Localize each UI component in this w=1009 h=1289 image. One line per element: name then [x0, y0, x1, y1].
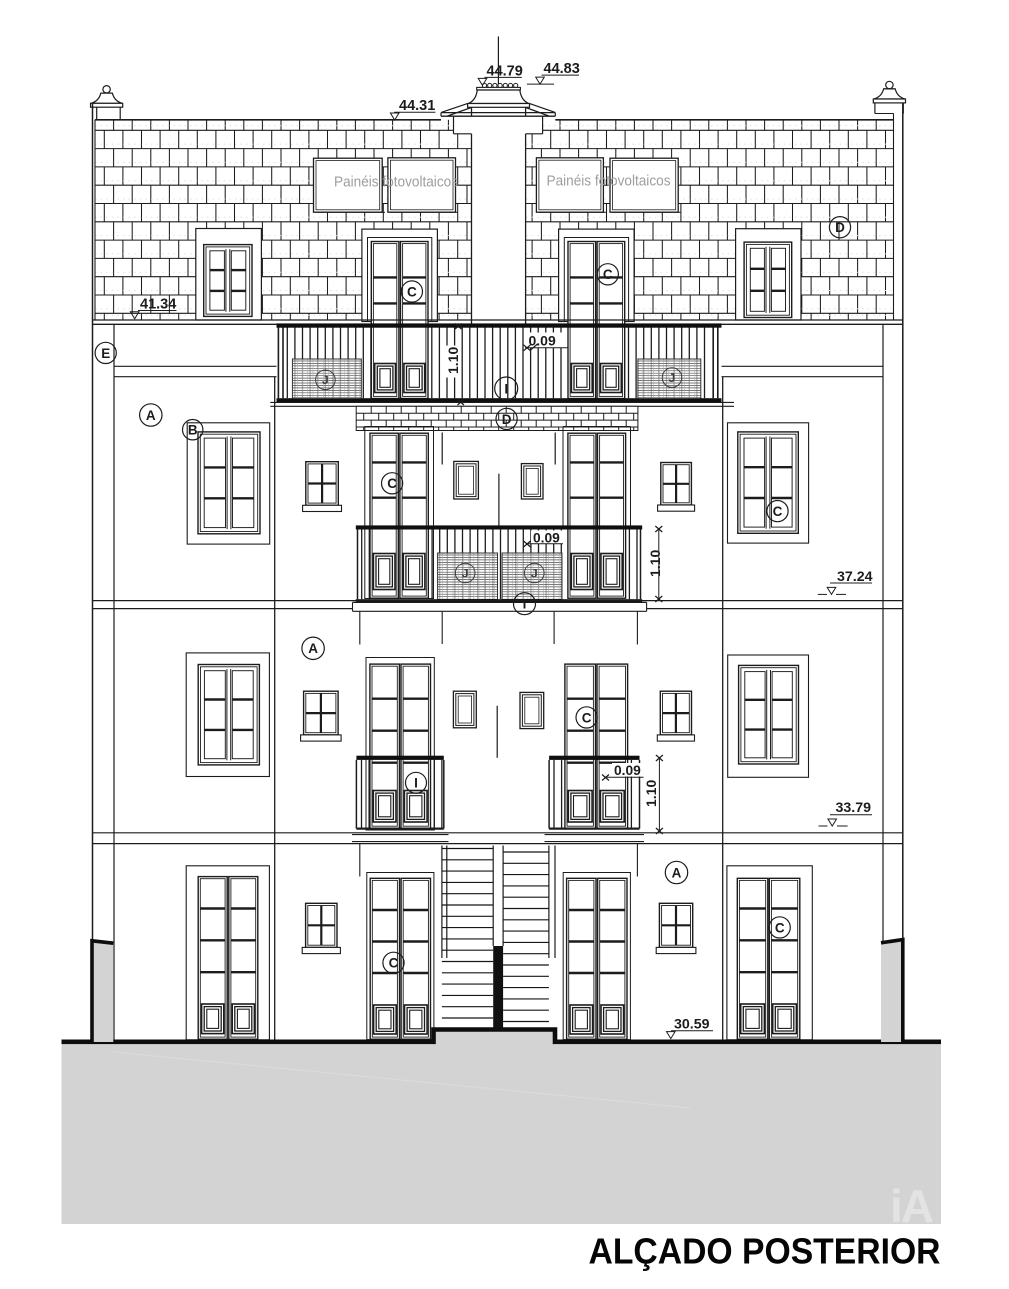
svg-text:C: C: [775, 920, 785, 935]
svg-text:A: A: [672, 865, 682, 880]
svg-text:J: J: [462, 566, 469, 580]
svg-text:A: A: [146, 408, 156, 423]
svg-text:iA: iA: [890, 1180, 933, 1232]
svg-text:41.34: 41.34: [140, 296, 176, 312]
svg-text:I: I: [414, 776, 418, 791]
svg-text:C: C: [773, 504, 783, 519]
svg-text:D: D: [835, 220, 845, 235]
svg-text:I: I: [504, 381, 508, 396]
svg-text:Painéis fotovoltaicos: Painéis fotovoltaicos: [334, 174, 458, 191]
svg-text:C: C: [407, 284, 417, 299]
svg-text:1.10: 1.10: [647, 550, 663, 577]
svg-text:30.59: 30.59: [674, 1017, 710, 1033]
svg-text:ALÇADO POSTERIOR: ALÇADO POSTERIOR: [589, 1231, 941, 1272]
svg-text:C: C: [387, 476, 397, 491]
svg-text:C: C: [389, 956, 399, 971]
svg-text:E: E: [101, 346, 110, 361]
svg-text:1.10: 1.10: [643, 780, 659, 807]
svg-text:J: J: [322, 373, 329, 387]
svg-text:1.10: 1.10: [445, 347, 461, 374]
svg-text:0.09: 0.09: [529, 333, 556, 349]
svg-text:33.79: 33.79: [836, 800, 872, 816]
svg-text:J: J: [531, 566, 538, 580]
svg-text:C: C: [603, 267, 613, 282]
svg-text:Painéis fotovoltaicos: Painéis fotovoltaicos: [547, 173, 671, 190]
svg-text:0.09: 0.09: [533, 531, 560, 546]
svg-text:0.09: 0.09: [614, 763, 641, 778]
svg-text:C: C: [582, 710, 592, 725]
svg-text:D: D: [502, 412, 512, 427]
svg-text:B: B: [188, 423, 198, 438]
svg-text:44.83: 44.83: [544, 61, 580, 77]
svg-text:A: A: [308, 641, 318, 656]
svg-text:J: J: [669, 371, 676, 385]
svg-text:I: I: [523, 597, 527, 612]
